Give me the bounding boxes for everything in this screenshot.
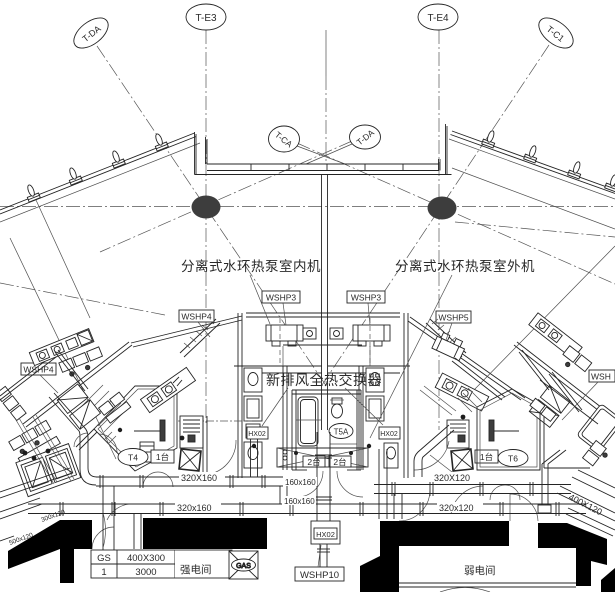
svg-text:WSHP10: WSHP10	[300, 570, 339, 581]
svg-text:GS: GS	[97, 553, 111, 564]
svg-text:强电间: 强电间	[180, 563, 212, 576]
svg-text:1台: 1台	[480, 452, 493, 462]
svg-text:320X120: 320X120	[434, 473, 470, 483]
svg-text:320x120: 320x120	[439, 503, 474, 513]
svg-text:3000: 3000	[135, 567, 156, 578]
svg-text:WSH: WSH	[591, 372, 611, 382]
svg-text:T4: T4	[128, 453, 138, 463]
svg-text:WSHP4: WSHP4	[181, 312, 212, 322]
svg-text:2台: 2台	[333, 457, 346, 467]
svg-text:分离式水环热泵室外机: 分离式水环热泵室外机	[395, 258, 535, 274]
svg-text:HX02: HX02	[380, 431, 398, 438]
svg-text:分离式水环热泵室内机: 分离式水环热泵室内机	[181, 258, 321, 274]
svg-text:T-E3: T-E3	[195, 13, 217, 24]
svg-text:T-E4: T-E4	[427, 13, 449, 24]
svg-text:T5A: T5A	[334, 428, 349, 437]
svg-text:HX02: HX02	[316, 530, 335, 539]
svg-text:2台: 2台	[307, 457, 320, 467]
svg-text:GAS: GAS	[236, 563, 251, 570]
svg-text:320X160: 320X160	[181, 473, 217, 483]
svg-text:160x160: 160x160	[285, 478, 316, 487]
svg-text:弱电间: 弱电间	[464, 564, 496, 577]
svg-text:320x160: 320x160	[177, 503, 212, 513]
svg-text:WSHP3: WSHP3	[351, 293, 382, 303]
svg-text:T6: T6	[508, 454, 518, 464]
svg-text:新排风全热交换器: 新排风全热交换器	[266, 372, 382, 388]
svg-text:1: 1	[101, 567, 106, 578]
svg-text:400X300: 400X300	[127, 553, 165, 564]
svg-text:160x160: 160x160	[284, 497, 315, 506]
svg-text:WSHP3: WSHP3	[266, 293, 297, 303]
svg-text:WSHP5: WSHP5	[438, 313, 469, 323]
svg-text:1台: 1台	[156, 452, 169, 462]
svg-text:HX02: HX02	[248, 431, 266, 438]
